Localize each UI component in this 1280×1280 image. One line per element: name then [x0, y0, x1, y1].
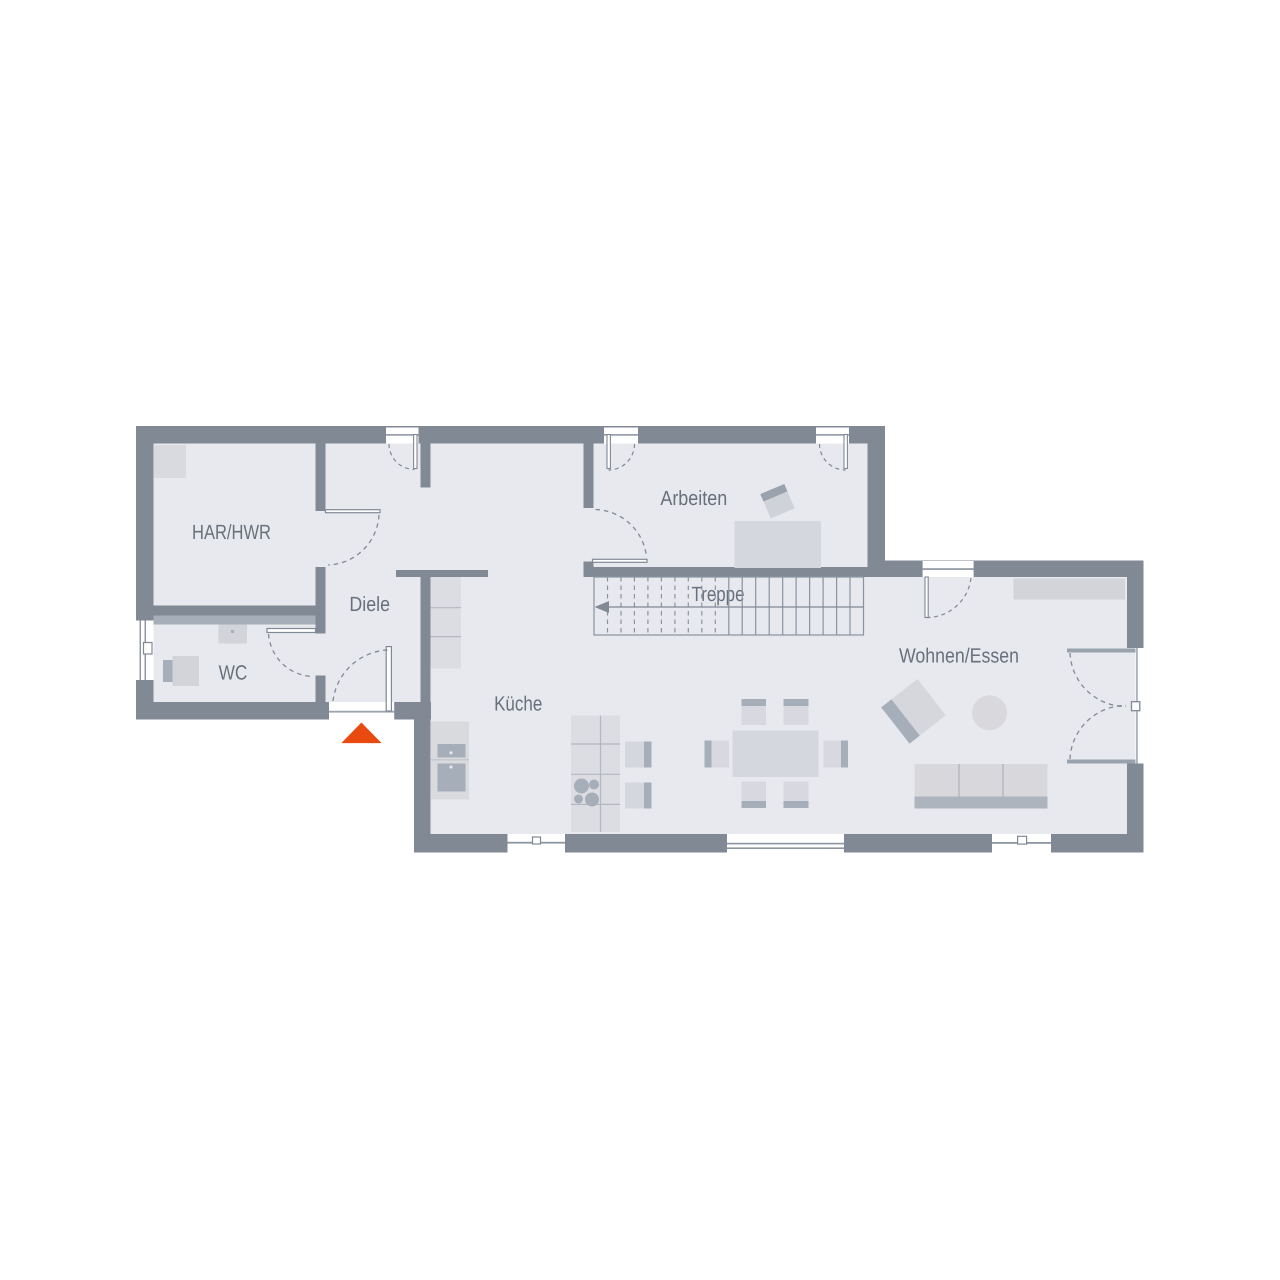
svg-text:WC: WC [219, 661, 248, 684]
svg-text:Diele: Diele [349, 593, 390, 616]
svg-text:Küche: Küche [494, 692, 542, 715]
svg-text:Treppe: Treppe [691, 583, 744, 606]
svg-text:Arbeiten: Arbeiten [660, 487, 727, 510]
svg-text:HAR/HWR: HAR/HWR [192, 521, 271, 544]
svg-text:Wohnen/Essen: Wohnen/Essen [899, 644, 1019, 667]
